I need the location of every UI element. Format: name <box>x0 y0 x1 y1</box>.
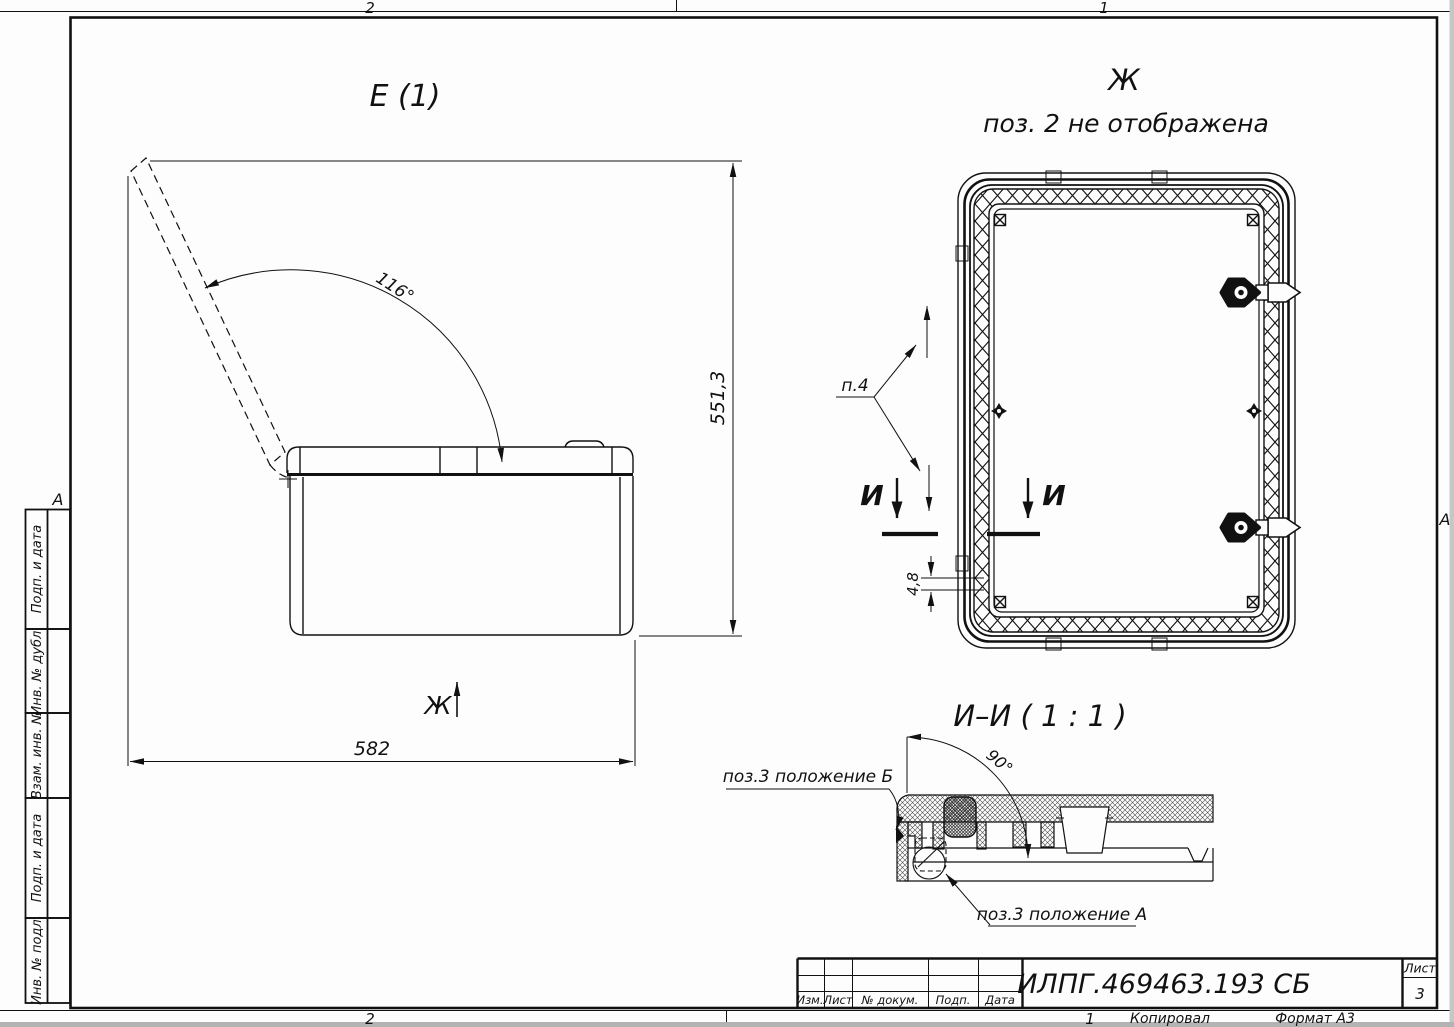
view-zh-subtitle: поз. 2 не отображена <box>983 109 1269 138</box>
drawing-canvas: 2 1 2 1 А А Копировал Формат А3 Подп. и … <box>0 0 1454 1027</box>
section-letter-left: И <box>860 479 883 512</box>
sidebar-label-inv-dubl: Инв. № дубл. <box>30 627 45 716</box>
mid-fasteners <box>991 403 1262 419</box>
sheet-number: 3 <box>1415 985 1425 1003</box>
copied-label: Копировал <box>1130 1011 1210 1027</box>
view-e: Е (1) 116° 551,3 582 <box>128 79 742 766</box>
view-e-title: Е (1) <box>370 79 441 114</box>
zone-top-left: 2 <box>365 0 375 17</box>
sidebar-label-vzam-inv: Взам. инв. № <box>30 711 45 799</box>
dim-551-label: 551,3 <box>707 371 729 425</box>
dim-48-label: 4,8 <box>904 572 922 596</box>
view-zh-title: Ж <box>1106 63 1141 97</box>
angle-116-label: 116° <box>372 268 417 307</box>
doc-number: ИЛПГ.469463.193 СБ <box>1017 969 1311 1000</box>
sidebar-label-inv-podl: Инв. № подл. <box>30 915 45 1005</box>
sidebar-label-podp-data-2: Подп. и дата <box>30 814 45 903</box>
zone-top-right: 1 <box>1099 0 1109 17</box>
seal-pos-b <box>944 797 976 837</box>
view-zh-arrow-label: Ж <box>423 691 453 720</box>
view-zh: Ж поз. 2 не отображена <box>836 63 1300 650</box>
sidebar: Подп. и дата Инв. № дубл. Взам. инв. № П… <box>26 510 71 1005</box>
format-label: Формат А3 <box>1275 1011 1355 1027</box>
zone-side-left: А <box>52 490 64 509</box>
open-lid-outline <box>131 158 290 478</box>
tb-col-list: Лист <box>822 993 852 1007</box>
label-pos-b: поз.3 положение Б <box>723 767 893 787</box>
corner-fasteners <box>995 215 1259 608</box>
zone-bottom-right: 1 <box>1085 1010 1095 1027</box>
zone-bottom-left: 2 <box>365 1010 375 1027</box>
angle-90-label: 90° <box>983 745 1017 778</box>
truss-band <box>974 189 1279 632</box>
tb-col-dokum: № докум. <box>861 993 919 1007</box>
page-edge-bottom <box>0 1022 1454 1027</box>
section-title: И–И ( 1 : 1 ) <box>953 699 1126 733</box>
label-pos-a: поз.3 положение А <box>977 905 1147 925</box>
drawing-sheet: 2 1 2 1 А А Копировал Формат А3 Подп. и … <box>0 0 1454 1027</box>
dim-582-label: 582 <box>354 738 390 760</box>
tb-col-podp: Подп. <box>936 993 971 1007</box>
zone-side-right: А <box>1439 510 1451 529</box>
tb-col-data: Дата <box>984 993 1015 1007</box>
section-ii: И–И ( 1 : 1 ) 90 <box>723 699 1213 926</box>
tb-col-izm: Изм. <box>796 993 823 1007</box>
sheet-label: Лист <box>1403 961 1436 976</box>
sidebar-label-podp-data-1: Подп. и дата <box>30 525 45 614</box>
title-block: Изм. Лист № докум. Подп. Дата ИЛПГ.46946… <box>796 959 1437 1009</box>
note-p4: п.4 <box>841 376 868 396</box>
section-letter-right: И <box>1042 479 1065 512</box>
